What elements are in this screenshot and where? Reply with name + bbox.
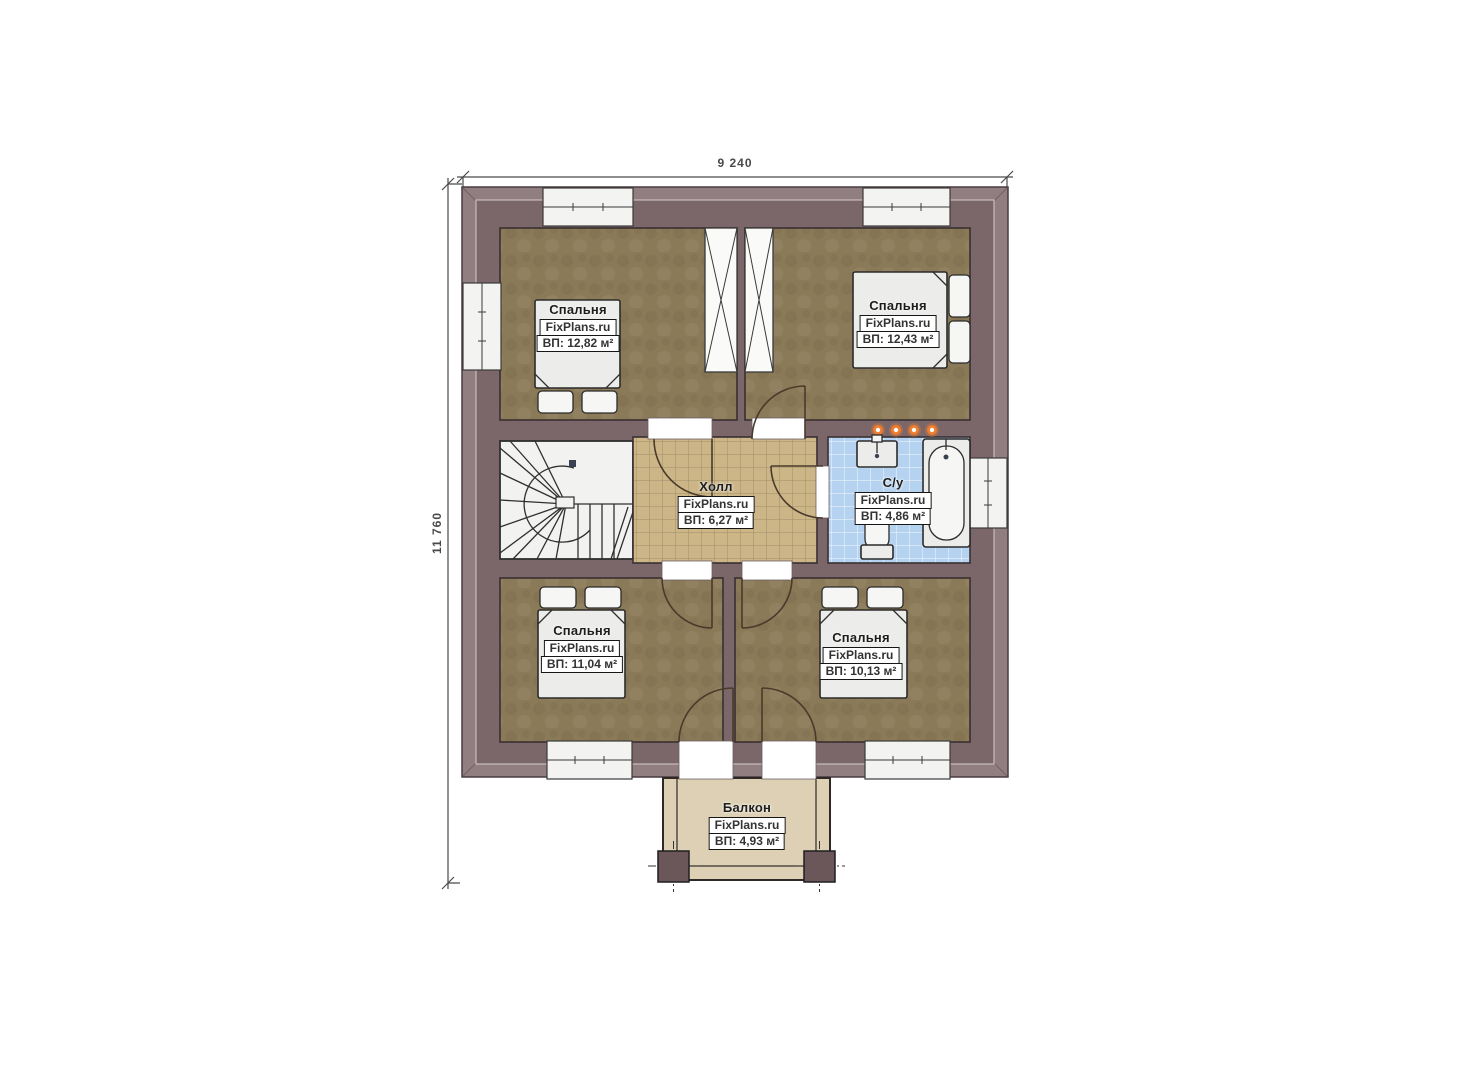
room-name: Спальня: [832, 631, 890, 645]
pillow: [540, 587, 576, 608]
window-top-left: [543, 188, 633, 226]
room-name: С/у: [883, 476, 904, 490]
dimension-height-label: 11 760: [430, 512, 444, 554]
area-box: ВП: 12,82 м²: [537, 335, 620, 352]
pillow: [582, 391, 617, 413]
area-box: ВП: 6,27 м²: [678, 512, 754, 529]
brand-box: FixPlans.ru: [544, 640, 621, 657]
brand-box: FixPlans.ru: [540, 319, 617, 336]
window-bottom-left: [547, 741, 632, 779]
brand-box: FixPlans.ru: [860, 315, 937, 332]
pillow: [538, 391, 573, 413]
pillow: [949, 275, 970, 317]
room-label-bedroom-top-right: Спальня FixPlans.ru ВП: 12,43 м²: [857, 299, 940, 348]
window-bottom-right: [865, 741, 950, 779]
balcony-column-left: [658, 851, 689, 882]
room-name: Спальня: [549, 303, 607, 317]
window-top-right: [863, 188, 950, 226]
room-name: Балкон: [723, 801, 771, 815]
dimension-width-label: 9 240: [717, 156, 752, 170]
dimension-left: [442, 178, 462, 889]
spotlight-icon: [889, 423, 903, 437]
area-box: ВП: 4,86 м²: [855, 508, 931, 525]
area-box: ВП: 11,04 м²: [541, 656, 623, 673]
brand-box: FixPlans.ru: [678, 496, 755, 513]
pillow: [585, 587, 621, 608]
area-box: ВП: 10,13 м²: [820, 663, 903, 680]
room-name: Спальня: [553, 624, 611, 638]
brand-box: FixPlans.ru: [855, 492, 932, 509]
room-label-bedroom-bottom-left: Спальня FixPlans.ru ВП: 11,04 м²: [541, 624, 623, 673]
floor-plan-canvas: Спальня FixPlans.ru ВП: 12,82 м² Спальня…: [0, 0, 1473, 1080]
pillow: [867, 587, 903, 608]
area-box: ВП: 12,43 м²: [857, 331, 940, 348]
room-label-bedroom-top-left: Спальня FixPlans.ru ВП: 12,82 м²: [537, 303, 620, 352]
window-right: [969, 458, 1007, 528]
spotlight-icon: [925, 423, 939, 437]
brand-box: FixPlans.ru: [709, 817, 786, 834]
brand-box: FixPlans.ru: [823, 647, 900, 664]
room-label-hall: Холл FixPlans.ru ВП: 6,27 м²: [678, 480, 755, 529]
stair-start-marker: [569, 460, 576, 467]
area-box: ВП: 4,93 м²: [709, 833, 785, 850]
room-label-bathroom: С/у FixPlans.ru ВП: 4,86 м²: [855, 476, 932, 525]
balcony-column-right: [804, 851, 835, 882]
window-left: [463, 283, 501, 370]
room-name: Спальня: [869, 299, 927, 313]
pillow: [822, 587, 858, 608]
room-name: Холл: [699, 480, 732, 494]
dimension-top: [457, 171, 1013, 188]
pillow: [949, 321, 970, 363]
room-label-balcony: Балкон FixPlans.ru ВП: 4,93 м²: [709, 801, 786, 850]
room-label-bedroom-bottom-right: Спальня FixPlans.ru ВП: 10,13 м²: [820, 631, 903, 680]
spotlight-icon: [907, 423, 921, 437]
